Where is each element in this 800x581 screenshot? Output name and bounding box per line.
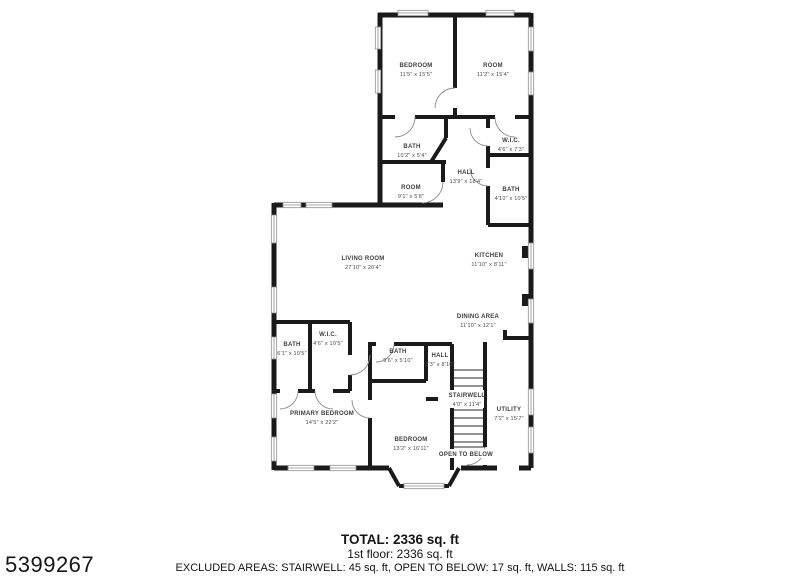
label-stairwell-name: STAIRWELL xyxy=(449,393,486,399)
label-bedroom-top-dims: 11'5" x 15'5" xyxy=(400,72,432,78)
label-open-to-below: OPEN TO BELOW xyxy=(439,452,493,458)
label-room-top-name: ROOM xyxy=(483,63,503,69)
label-primary-bedroom-dims: 14'5" x 22'2" xyxy=(306,420,339,426)
label-dining-area-name: DINING AREA xyxy=(457,314,500,320)
plan-summary: TOTAL: 2336 sq. ft 1st floor: 2336 sq. f… xyxy=(0,533,800,575)
label-living-room-name: LIVING ROOM xyxy=(341,256,384,262)
first-floor-area: 1st floor: 2336 sq. ft xyxy=(0,548,800,562)
label-kitchen-dims: 11'10" x 8'11" xyxy=(471,262,506,268)
label-bedroom-bottom-name: BEDROOM xyxy=(394,437,427,443)
label-room-mid-name: ROOM xyxy=(401,185,421,191)
door-arcs xyxy=(280,88,515,465)
floor-plan-page: BEDROOM 11'5" x 15'5" ROOM 11'2" x 15'4"… xyxy=(0,0,800,581)
label-bath-mid-dims: 9'6" x 5'10" xyxy=(383,358,413,364)
label-bedroom-bottom-dims: 13'2" x 16'11" xyxy=(393,446,429,452)
label-wic-upper-name: W.I.C. xyxy=(502,138,520,144)
label-living-room-dims: 27'10" x 20'4" xyxy=(345,265,381,271)
label-hall-lower-name: HALL xyxy=(432,353,449,359)
label-bath-upper-name: BATH xyxy=(403,144,420,150)
label-hall-upper-name: HALL xyxy=(458,170,475,176)
label-room-top-dims: 11'2" x 15'4" xyxy=(477,72,509,78)
label-hall-lower-dims: 2'3" x 8'10" xyxy=(425,362,455,368)
excluded-areas: EXCLUDED AREAS: STAIRWELL: 45 sq. ft, OP… xyxy=(0,562,800,575)
label-bath-left-name: BATH xyxy=(283,342,300,348)
label-room-mid-dims: 9'1" x 5'8" xyxy=(398,194,424,200)
outer-walls xyxy=(274,13,531,470)
floor-plan: BEDROOM 11'5" x 15'5" ROOM 11'2" x 15'4"… xyxy=(0,0,800,581)
photo-id: 5399267 xyxy=(5,552,94,578)
label-wic-upper-dims: 4'6" x 7'3" xyxy=(498,147,524,153)
label-utility-dims: 7'2" x 15'7" xyxy=(494,416,524,422)
label-bath-right-dims: 4'10" x 10'5" xyxy=(495,196,528,202)
label-wic-lower-dims: 4'6" x 10'5" xyxy=(313,341,343,347)
door-opening xyxy=(497,464,519,472)
label-hall-upper-dims: 13'9" x 18'4" xyxy=(450,179,483,185)
label-wic-lower-name: W.I.C. xyxy=(319,332,337,338)
label-bath-right-name: BATH xyxy=(502,187,519,193)
label-bedroom-top-name: BEDROOM xyxy=(399,63,432,69)
label-kitchen-name: KITCHEN xyxy=(475,253,503,259)
total-area: TOTAL: 2336 sq. ft xyxy=(0,533,800,548)
label-primary-bedroom-name: PRIMARY BEDROOM xyxy=(290,411,354,417)
label-utility-name: UTILITY xyxy=(497,407,521,413)
label-bath-left-dims: 6'1" x 10'5" xyxy=(277,351,307,357)
label-dining-area-dims: 11'10" x 12'1" xyxy=(460,323,496,329)
stair-treads xyxy=(452,370,485,447)
label-bath-upper-dims: 10'2" x 5'4" xyxy=(397,153,427,159)
label-stairwell-dims: 4'0" x 11'4" xyxy=(452,402,481,408)
label-bath-mid-name: BATH xyxy=(389,349,406,355)
